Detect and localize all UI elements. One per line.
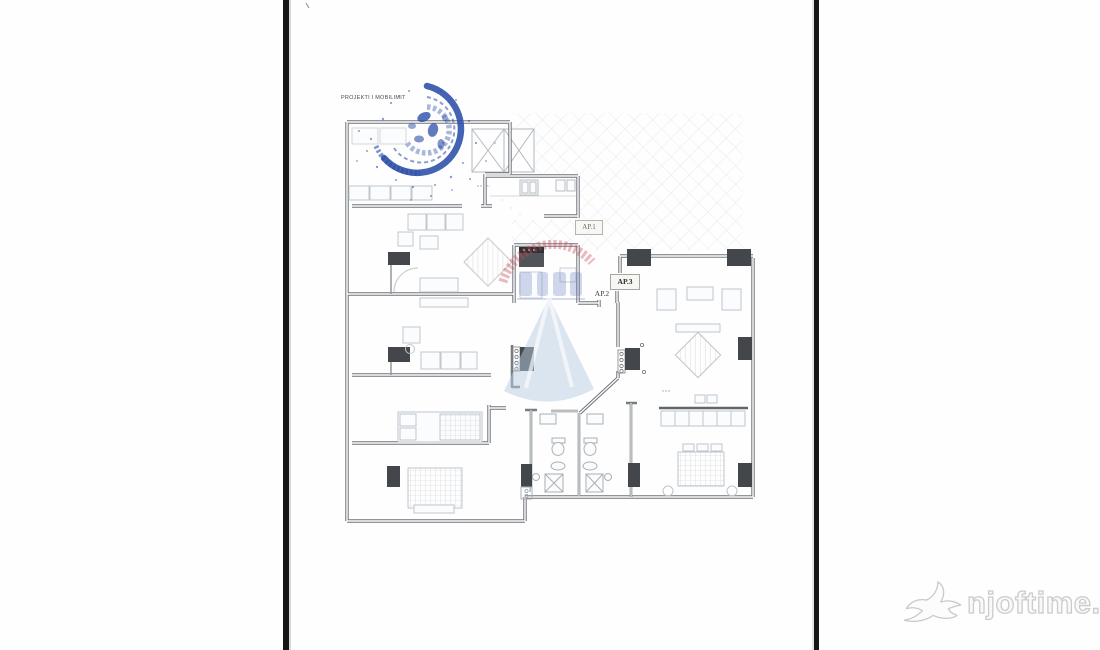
apartment-label-ap2: AP.2	[589, 289, 615, 298]
site-watermark: njoftime.al	[903, 580, 1100, 626]
bedroom-furniture	[398, 412, 482, 513]
apartment-label-ap1: AP.1	[575, 220, 603, 235]
left-frame-border	[283, 0, 289, 650]
skylight-boxes	[472, 129, 534, 172]
swallow-bird-icon	[903, 580, 965, 626]
scan-speck	[306, 3, 309, 8]
site-watermark-text: njoftime.al	[967, 585, 1100, 621]
sitting-room-furniture	[403, 298, 477, 369]
bathroom-fixtures	[521, 414, 612, 499]
floor-plan-drawing	[0, 0, 1100, 650]
ap3-furniture	[657, 287, 748, 496]
apartment-label-ap3: AP.3	[610, 274, 640, 290]
screenshot-root: PROJEKTI I MOBILIMIT	[0, 0, 1100, 650]
right-frame-border	[814, 0, 819, 650]
ap3-kitchen-unit	[618, 343, 646, 373]
